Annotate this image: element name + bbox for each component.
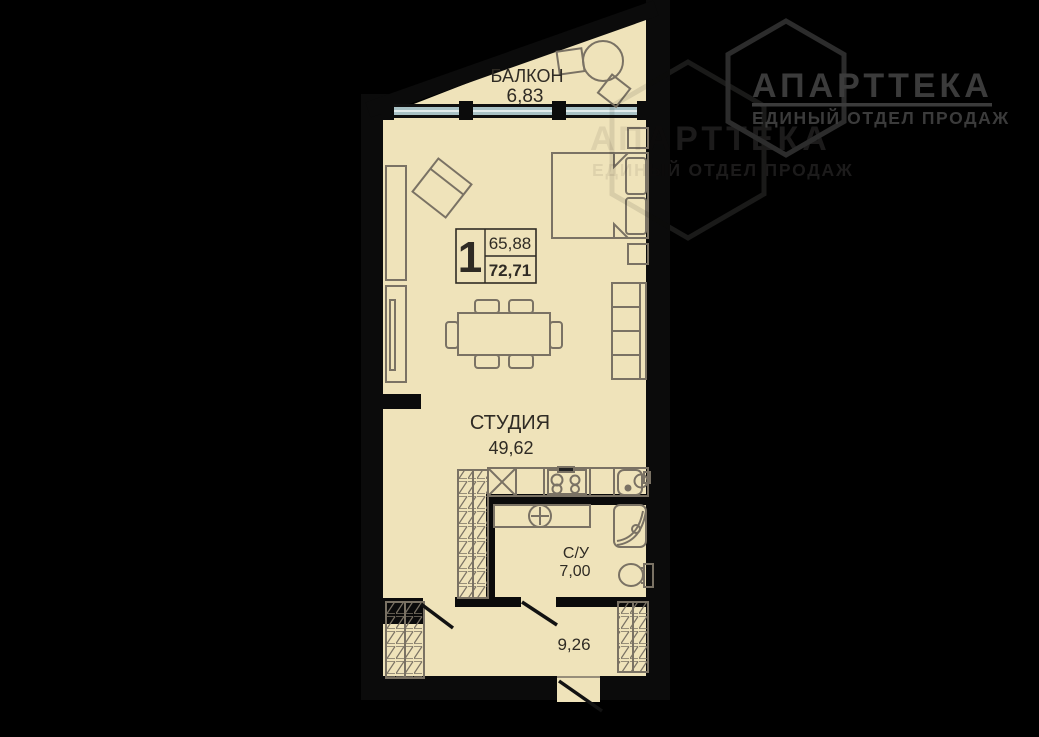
- bathroom-label: С/У: [563, 545, 590, 562]
- apartment-floor: [383, 107, 648, 676]
- wall-bottom-right: [600, 676, 670, 700]
- logo-subtitle: ЕДИНЫЙ ОТДЕЛ ПРОДАЖ: [752, 107, 1010, 128]
- hallway-area: 9,26: [557, 635, 590, 654]
- studio-label: СТУДИЯ: [470, 412, 550, 434]
- window-post: [459, 101, 473, 120]
- wardrobe-icon: [386, 602, 424, 678]
- studio-area: 49,62: [488, 438, 533, 458]
- unit-info-box: 1 65,88 72,71: [456, 229, 536, 283]
- balcony-area: 6,83: [507, 86, 544, 107]
- logo-divider: [752, 103, 992, 107]
- watermark-subtitle-overlay: ЕДИНЫЙ ОТДЕЛ ПРОДАЖ: [592, 159, 854, 180]
- wardrobe-icon: [458, 470, 488, 598]
- entrance-floor: [557, 676, 600, 702]
- window-glass-highlight: [386, 110, 645, 112]
- wall-bottom-left: [361, 676, 557, 700]
- unit-number: 1: [458, 233, 482, 282]
- bathroom-area: 7,00: [559, 563, 590, 580]
- wall-stub-left: [383, 394, 421, 409]
- unit-area-living: 65,88: [489, 234, 532, 253]
- window-post: [637, 101, 649, 120]
- wall-right: [646, 0, 670, 700]
- balcony-label: БАЛКОН: [491, 66, 564, 86]
- unit-area-total: 72,71: [489, 261, 532, 280]
- floor-plan: 1 65,88 72,71 БАЛКОН 6,83 СТУДИЯ 49,62 С…: [361, 0, 670, 711]
- wardrobe-icon: [618, 602, 648, 672]
- logo-title: АПАРТТЕКА: [752, 67, 993, 105]
- window-post: [381, 101, 394, 120]
- wall-left: [361, 94, 383, 700]
- window-post: [552, 101, 566, 120]
- page: АПАРТТЕКА ЕДИНЫЙ ОТДЕЛ ПРОДАЖ: [0, 0, 1039, 737]
- floor-plan-canvas: АПАРТТЕКА ЕДИНЫЙ ОТДЕЛ ПРОДАЖ: [0, 0, 1039, 737]
